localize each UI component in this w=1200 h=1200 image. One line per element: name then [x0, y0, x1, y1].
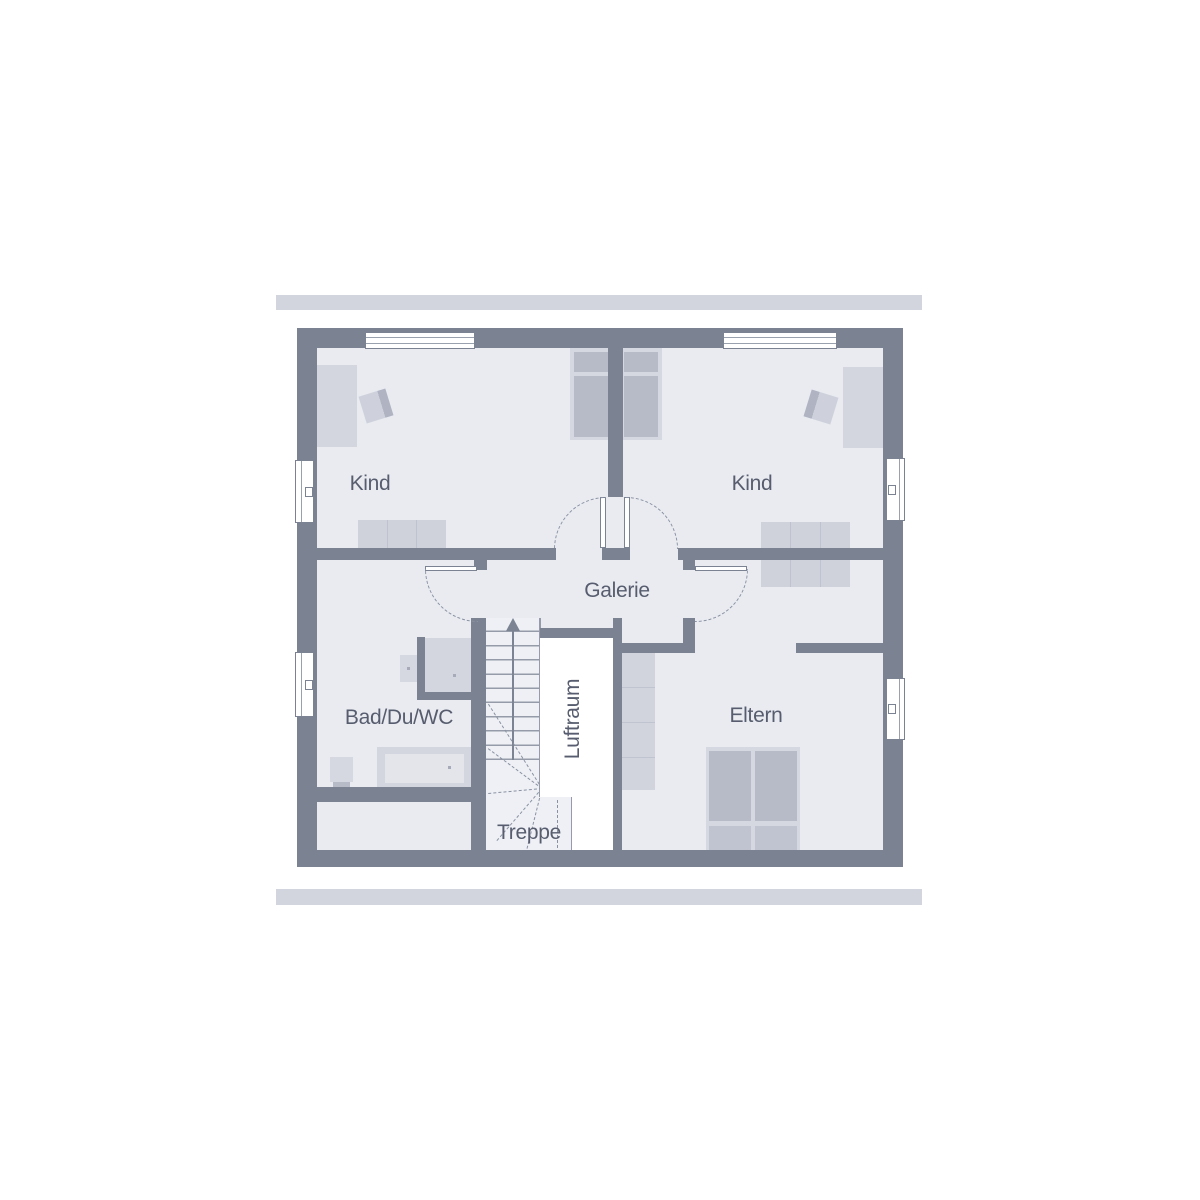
bottom-roof-bar: [276, 889, 922, 905]
wardrobe-divider: [622, 722, 655, 723]
stair-direction-arrow: [506, 618, 520, 631]
wall-kind-galerie-left: [317, 548, 556, 560]
window-handle: [305, 487, 313, 497]
wardrobe-eltern: [622, 653, 655, 790]
wall-eltern-entry-vertical: [683, 618, 695, 653]
wall-between-kind-rooms: [608, 340, 623, 497]
window-right-upper: [886, 458, 905, 521]
bed-eltern-mattress-left: [709, 751, 751, 821]
wall-stairwell-west: [471, 618, 486, 850]
window-handle: [888, 485, 896, 495]
wall-eltern-north-right: [796, 643, 883, 653]
bed-kind-right-mattress: [624, 376, 658, 437]
washbasin: [400, 655, 417, 682]
room-label-kind-right: Kind: [704, 471, 800, 496]
shower-wall-horizontal: [417, 692, 471, 700]
room-label-kind-left: Kind: [322, 471, 418, 496]
window-line: [724, 343, 836, 344]
room-label-galerie: Galerie: [557, 578, 677, 603]
wall-luftraum-east: [613, 618, 622, 850]
bathtub-faucet: [448, 766, 451, 769]
window-line: [899, 679, 900, 739]
wc-toilet: [330, 757, 353, 782]
window-line: [301, 461, 302, 522]
window-handle: [888, 704, 896, 714]
window-handle: [305, 680, 313, 690]
wall-kind-galerie-right: [678, 548, 883, 560]
window-line: [899, 459, 900, 520]
bed-eltern-pillow-left: [709, 826, 751, 850]
basin-faucet: [407, 667, 410, 670]
window-left-upper: [295, 460, 314, 523]
shower-drain: [453, 674, 456, 677]
window-line: [366, 337, 474, 338]
desk-kind-left: [317, 365, 357, 447]
floor-plan-canvas: Kind Kind Galerie Bad/Du/WC Eltern Luftr…: [0, 0, 1200, 1200]
window-line: [366, 343, 474, 344]
shower-pan: [425, 638, 471, 692]
bathtub: [377, 747, 478, 790]
top-roof-bar: [276, 295, 922, 310]
bed-kind-right-pillow: [624, 352, 658, 372]
wall-bath-south: [317, 787, 471, 802]
room-label-luftraum: Luftraum: [560, 669, 586, 769]
dresser-kind-left: [358, 520, 446, 548]
desk-kind-right: [843, 367, 883, 448]
window-top-right: [723, 332, 837, 349]
room-label-treppe: Treppe: [479, 820, 579, 845]
wall-luftraum-top: [540, 628, 621, 638]
window-line: [724, 337, 836, 338]
wardrobe-divider: [622, 757, 655, 758]
bed-eltern-pillow-right: [755, 826, 797, 850]
wall-eltern-entry-horizontal: [622, 643, 683, 653]
room-label-bad-du-wc: Bad/Du/WC: [329, 705, 469, 730]
wall-center-foot: [602, 548, 630, 560]
window-top-left: [365, 332, 475, 349]
dresser-divider: [387, 520, 388, 548]
dresser-divider: [416, 520, 417, 548]
bed-eltern-mattress-right: [755, 751, 797, 821]
shower-wall-vertical: [417, 637, 425, 700]
wall-stub-eltern-door: [683, 560, 695, 570]
wardrobe-divider: [622, 687, 655, 688]
bed-kind-left-pillow: [574, 352, 608, 372]
window-left-lower: [295, 652, 314, 717]
bed-kind-left-mattress: [574, 376, 608, 437]
window-right-lower: [886, 678, 905, 740]
room-label-eltern: Eltern: [696, 703, 816, 728]
window-line: [301, 653, 302, 716]
bathtub-inner: [385, 754, 464, 783]
